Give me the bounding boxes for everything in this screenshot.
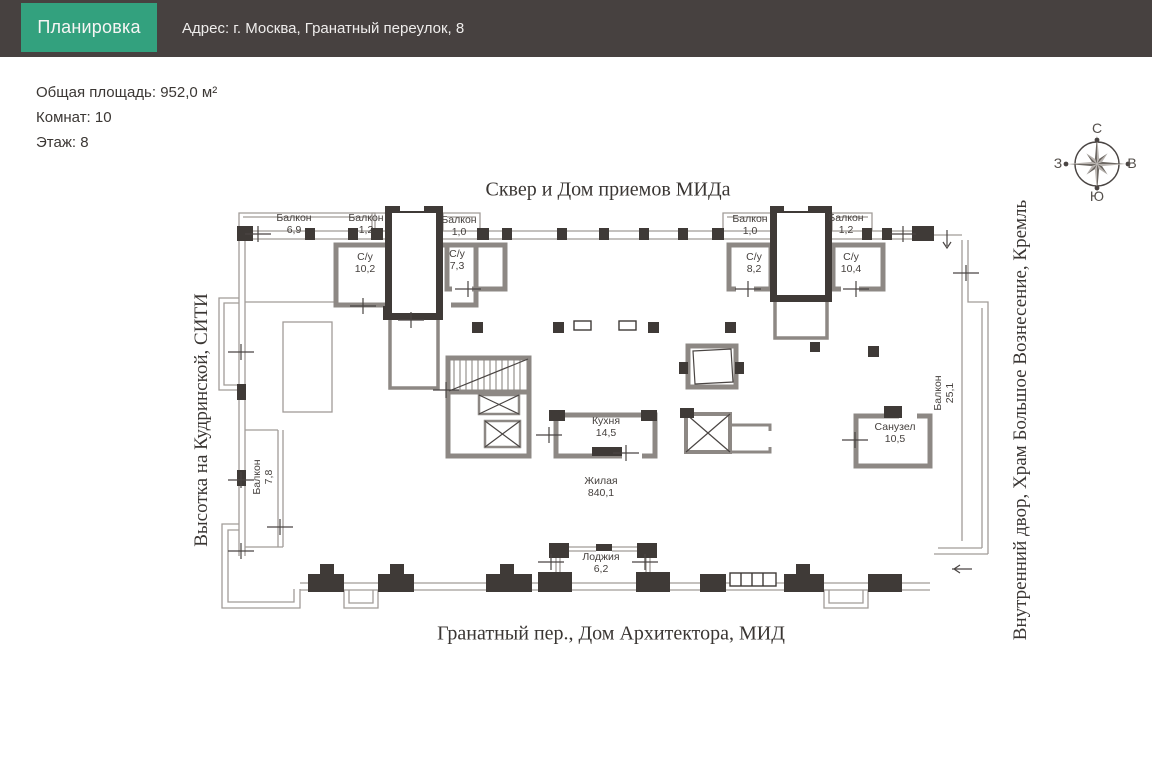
room-label-su-102: С/у10,2 — [355, 251, 375, 275]
room-label-su-82: С/у8,2 — [746, 251, 762, 275]
room-label-living: Жилая840,1 — [584, 475, 617, 499]
room-label-balcony-10-left: Балкон1,0 — [441, 214, 476, 238]
room-label-balcony-78: Балкон7,8 — [251, 459, 275, 494]
room-label-loggia: Лоджия6,2 — [582, 551, 619, 575]
room-label-balcony-251: Балкон25,1 — [932, 375, 956, 410]
room-label-balcony-12-left: Балкон1,2 — [348, 212, 383, 236]
dark-walls — [237, 206, 934, 592]
room-label-balcony-10-right: Балкон1,0 — [732, 213, 767, 237]
door-gaps — [425, 285, 917, 460]
room-label-su-104: С/у10,4 — [841, 251, 861, 275]
floor-plan — [0, 0, 1152, 768]
window-ticks — [228, 226, 979, 573]
room-label-sanuzel: Санузел10,5 — [875, 421, 916, 445]
room-label-su-73: С/у7,3 — [449, 248, 465, 272]
room-label-balcony-12-right: Балкон1,2 — [828, 212, 863, 236]
room-label-kitchen: Кухня14,5 — [592, 415, 620, 439]
room-label-balcony-69: Балкон6,9 — [276, 212, 311, 236]
